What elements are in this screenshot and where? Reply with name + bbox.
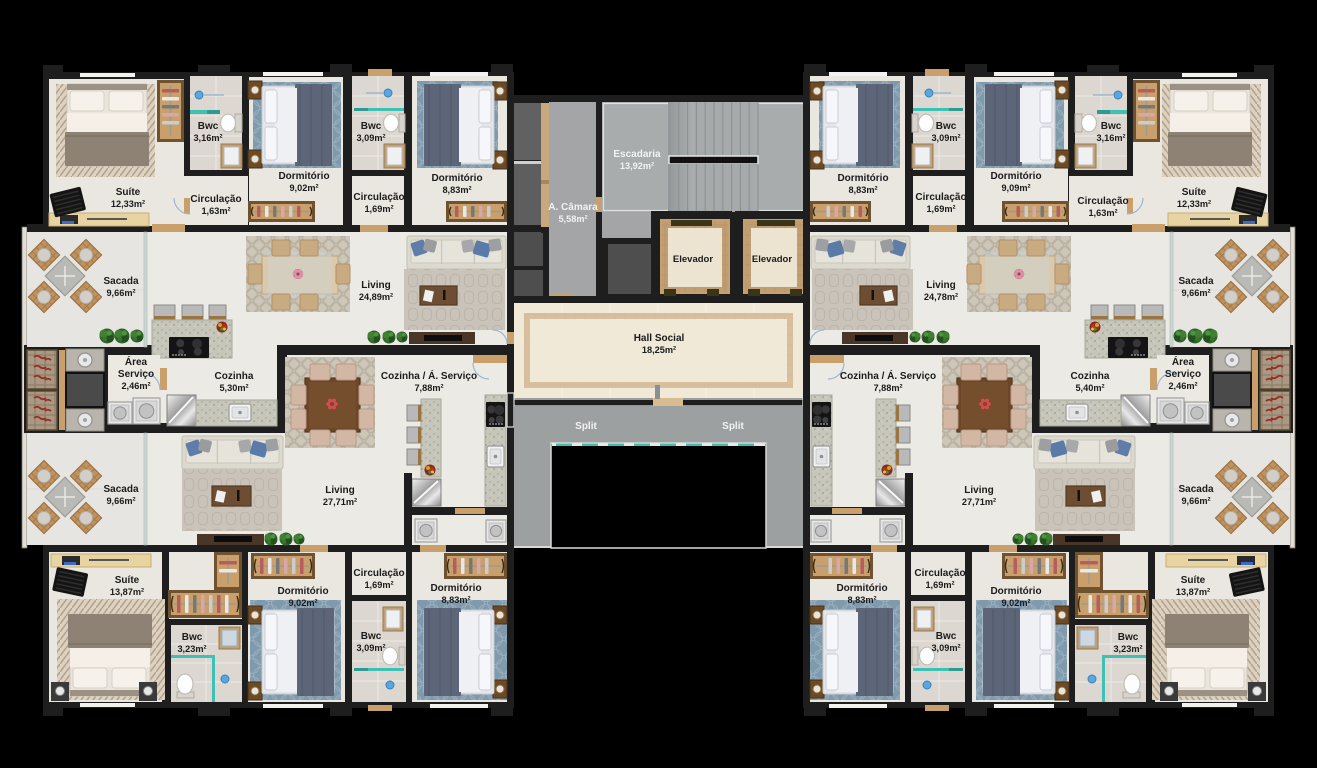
svg-text:Bwc: Bwc xyxy=(198,121,219,132)
svg-text:Circulação: Circulação xyxy=(353,192,404,203)
svg-text:Split: Split xyxy=(722,421,744,432)
svg-text:Bwc: Bwc xyxy=(1101,121,1122,132)
svg-text:8,83m²: 8,83m² xyxy=(441,595,470,605)
svg-text:Dormitório: Dormitório xyxy=(990,171,1041,182)
svg-text:3,09m²: 3,09m² xyxy=(356,133,385,143)
svg-text:18,25m²: 18,25m² xyxy=(642,345,676,355)
svg-text:Circulação: Circulação xyxy=(353,568,404,579)
svg-text:13,87m²: 13,87m² xyxy=(1176,587,1210,597)
svg-text:9,02m²: 9,02m² xyxy=(289,183,318,193)
svg-text:Dormitório: Dormitório xyxy=(990,586,1041,597)
svg-text:Área: Área xyxy=(1172,355,1195,368)
svg-text:1,63m²: 1,63m² xyxy=(1088,208,1117,218)
svg-text:1,69m²: 1,69m² xyxy=(926,204,955,214)
svg-text:Sacada: Sacada xyxy=(103,276,138,287)
svg-text:5,58m²: 5,58m² xyxy=(558,214,587,224)
svg-text:Cozinha / Á. Serviço: Cozinha / Á. Serviço xyxy=(381,369,477,382)
svg-text:Área: Área xyxy=(125,355,148,368)
svg-text:Dormitório: Dormitório xyxy=(277,586,328,597)
svg-text:Living: Living xyxy=(325,485,354,496)
svg-text:9,02m²: 9,02m² xyxy=(288,598,317,608)
svg-text:Dormitório: Dormitório xyxy=(431,173,482,184)
svg-text:12,33m²: 12,33m² xyxy=(1177,199,1211,209)
svg-text:Serviço: Serviço xyxy=(1165,369,1201,380)
svg-text:Living: Living xyxy=(361,280,390,291)
svg-text:Sacada: Sacada xyxy=(1178,484,1213,495)
svg-text:Dormitório: Dormitório xyxy=(837,173,888,184)
svg-text:13,87m²: 13,87m² xyxy=(110,587,144,597)
svg-text:9,09m²: 9,09m² xyxy=(1001,183,1030,193)
svg-text:8,83m²: 8,83m² xyxy=(847,595,876,605)
svg-text:Living: Living xyxy=(964,485,993,496)
svg-text:Circulação: Circulação xyxy=(915,192,966,203)
svg-text:2,46m²: 2,46m² xyxy=(1168,381,1197,391)
svg-text:5,40m²: 5,40m² xyxy=(1075,383,1104,393)
svg-text:9,02m²: 9,02m² xyxy=(1001,598,1030,608)
svg-text:Bwc: Bwc xyxy=(936,631,957,642)
svg-text:9,66m²: 9,66m² xyxy=(1181,496,1210,506)
svg-text:Dormitório: Dormitório xyxy=(836,583,887,594)
svg-text:9,66m²: 9,66m² xyxy=(106,496,135,506)
svg-text:12,33m²: 12,33m² xyxy=(111,199,145,209)
svg-text:13,92m²: 13,92m² xyxy=(620,161,654,171)
svg-text:3,16m²: 3,16m² xyxy=(1096,133,1125,143)
svg-text:Bwc: Bwc xyxy=(1118,632,1139,643)
svg-text:24,78m²: 24,78m² xyxy=(924,292,958,302)
svg-text:2,46m²: 2,46m² xyxy=(121,381,150,391)
svg-text:8,83m²: 8,83m² xyxy=(848,185,877,195)
svg-text:A. Câmara: A. Câmara xyxy=(548,202,598,213)
svg-text:Escadaria: Escadaria xyxy=(613,149,661,160)
svg-text:Suíte: Suíte xyxy=(115,575,140,586)
svg-text:27,71m²: 27,71m² xyxy=(323,497,357,507)
svg-text:Suíte: Suíte xyxy=(1182,187,1207,198)
svg-text:Circulação: Circulação xyxy=(190,194,241,205)
svg-text:Cozinha: Cozinha xyxy=(1071,371,1110,382)
svg-text:Serviço: Serviço xyxy=(118,369,154,380)
svg-text:9,66m²: 9,66m² xyxy=(1181,288,1210,298)
svg-text:27,71m²: 27,71m² xyxy=(962,497,996,507)
svg-text:3,16m²: 3,16m² xyxy=(193,133,222,143)
svg-text:24,89m²: 24,89m² xyxy=(359,292,393,302)
svg-text:5,30m²: 5,30m² xyxy=(219,383,248,393)
svg-text:Dormitório: Dormitório xyxy=(278,171,329,182)
svg-text:Suíte: Suíte xyxy=(1181,575,1206,586)
svg-text:7,88m²: 7,88m² xyxy=(414,383,443,393)
svg-text:9,66m²: 9,66m² xyxy=(106,288,135,298)
svg-text:Bwc: Bwc xyxy=(182,632,203,643)
svg-text:Hall Social: Hall Social xyxy=(634,333,685,344)
svg-text:Sacada: Sacada xyxy=(103,484,138,495)
svg-text:Bwc: Bwc xyxy=(936,121,957,132)
svg-text:1,63m²: 1,63m² xyxy=(201,206,230,216)
svg-text:Circulação: Circulação xyxy=(1077,196,1128,207)
svg-text:3,23m²: 3,23m² xyxy=(177,644,206,654)
svg-text:1,69m²: 1,69m² xyxy=(364,204,393,214)
svg-text:Dormitório: Dormitório xyxy=(430,583,481,594)
svg-text:Bwc: Bwc xyxy=(361,121,382,132)
svg-text:Elevador: Elevador xyxy=(752,254,792,265)
svg-text:1,69m²: 1,69m² xyxy=(925,580,954,590)
svg-text:Cozinha / Á. Serviço: Cozinha / Á. Serviço xyxy=(840,369,936,382)
svg-text:Elevador: Elevador xyxy=(673,254,713,265)
svg-text:8,83m²: 8,83m² xyxy=(442,185,471,195)
svg-text:Split: Split xyxy=(575,421,597,432)
svg-text:Bwc: Bwc xyxy=(361,631,382,642)
svg-text:7,88m²: 7,88m² xyxy=(873,383,902,393)
svg-text:3,09m²: 3,09m² xyxy=(931,643,960,653)
svg-text:3,09m²: 3,09m² xyxy=(356,643,385,653)
svg-text:3,23m²: 3,23m² xyxy=(1113,644,1142,654)
svg-text:1,69m²: 1,69m² xyxy=(364,580,393,590)
svg-text:Suíte: Suíte xyxy=(116,187,141,198)
svg-text:3,09m²: 3,09m² xyxy=(931,133,960,143)
svg-text:Cozinha: Cozinha xyxy=(215,371,254,382)
svg-text:Circulação: Circulação xyxy=(914,568,965,579)
svg-text:Sacada: Sacada xyxy=(1178,276,1213,287)
svg-text:Living: Living xyxy=(926,280,955,291)
